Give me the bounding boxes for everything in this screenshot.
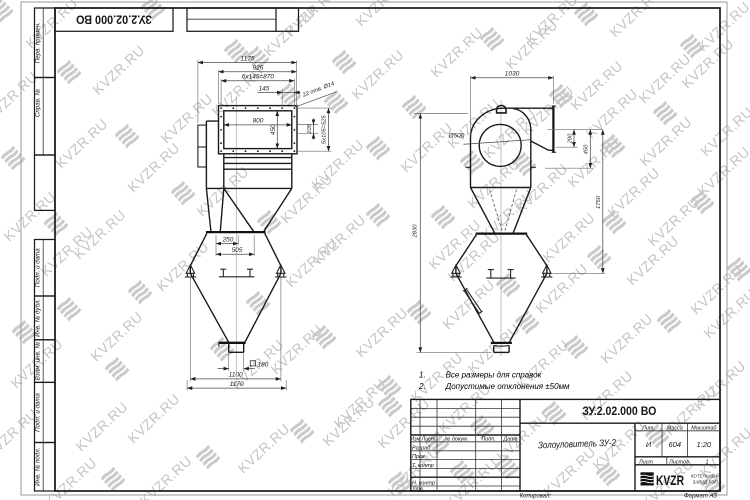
svg-text:800: 800 (253, 118, 264, 125)
svg-text:Масштаб: Масштаб (691, 425, 717, 431)
svg-text:Взам. инв. №: Взам. инв. № (34, 342, 41, 381)
svg-text:1100: 1100 (229, 372, 243, 379)
svg-text:KVZR: KVZR (656, 472, 684, 488)
svg-text:5х105=525: 5х105=525 (321, 115, 327, 145)
svg-text:450: 450 (583, 144, 589, 154)
svg-text:Подп. и дата: Подп. и дата (34, 248, 41, 287)
svg-text:505: 505 (232, 247, 243, 254)
svg-text:250: 250 (222, 236, 234, 243)
svg-text:1750: 1750 (596, 195, 602, 209)
svg-text:Дата: Дата (502, 436, 517, 442)
svg-text:ЗУ.2.02.000 ВО: ЗУ.2.02.000 ВО (76, 13, 152, 27)
svg-text:1175: 1175 (241, 55, 255, 62)
svg-text:ЗУ.2.02.000 ВО: ЗУ.2.02.000 ВО (582, 404, 656, 418)
svg-text:1: 1 (706, 459, 709, 465)
svg-text:1030: 1030 (505, 71, 520, 78)
svg-text:Копировал:: Копировал: (520, 494, 552, 500)
svg-text:Т. контр: Т. контр (412, 463, 434, 469)
svg-text:105: 105 (307, 123, 313, 133)
svg-text:Листов: Листов (668, 459, 689, 465)
svg-text:ЗАВОД РЭП: ЗАВОД РЭП (693, 479, 719, 484)
svg-text:180: 180 (258, 361, 269, 368)
svg-text:1:20: 1:20 (696, 440, 711, 449)
svg-text:КОТЕЛЬНЫЙ: КОТЕЛЬНЫЙ (691, 474, 719, 479)
svg-text:Справ. №: Справ. № (34, 89, 41, 117)
svg-text:Инв. № дубл.: Инв. № дубл. (34, 299, 41, 337)
svg-text:Масса: Масса (667, 425, 683, 431)
svg-text:Подп.: Подп. (481, 436, 495, 442)
svg-text:Утв.: Утв. (411, 487, 424, 493)
svg-text:Допустимые отклонения ±50мм: Допустимые отклонения ±50мм (445, 382, 570, 391)
svg-text:Лист: Лист (638, 459, 653, 465)
svg-text:Изм: Изм (410, 436, 420, 442)
svg-text:1170: 1170 (230, 381, 244, 388)
svg-text:Подп. и дата: Подп. и дата (34, 393, 41, 432)
svg-text:Все размеры для справок: Все размеры для справок (446, 370, 543, 379)
svg-text:604: 604 (669, 440, 682, 449)
svg-text:2830: 2830 (413, 224, 419, 239)
svg-text:Лит.: Лит. (641, 425, 655, 431)
svg-text:Формат А3: Формат А3 (684, 494, 717, 500)
svg-text:450: 450 (270, 124, 277, 135)
svg-text:200: 200 (567, 133, 573, 144)
svg-text:Лист: Лист (421, 436, 436, 442)
svg-text:6х145=870: 6х145=870 (242, 74, 275, 81)
svg-text:Инв. № подл.: Инв. № подл. (34, 447, 41, 485)
svg-text:926: 926 (253, 65, 264, 72)
svg-text:Разраб.: Разраб. (412, 445, 432, 451)
svg-text:2.: 2. (418, 382, 426, 391)
svg-text:Ø500: Ø500 (448, 133, 465, 140)
svg-text:1.: 1. (419, 370, 426, 379)
svg-text:№ докум.: № докум. (445, 436, 469, 442)
svg-text:Перв. примен.: Перв. примен. (34, 22, 41, 63)
svg-text:Пров.: Пров. (412, 454, 426, 460)
svg-text:Н. контр: Н. контр (412, 481, 435, 487)
svg-text:145: 145 (259, 85, 270, 92)
svg-text:И: И (646, 440, 652, 449)
